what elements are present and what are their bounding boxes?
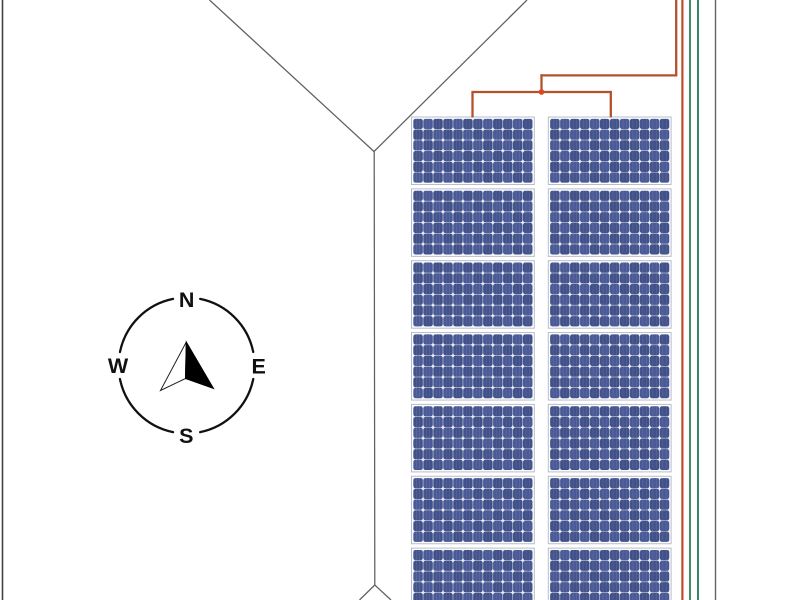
svg-text:N: N [179,288,195,312]
svg-text:E: E [252,354,266,378]
svg-text:S: S [179,424,193,448]
svg-text:W: W [108,354,129,378]
